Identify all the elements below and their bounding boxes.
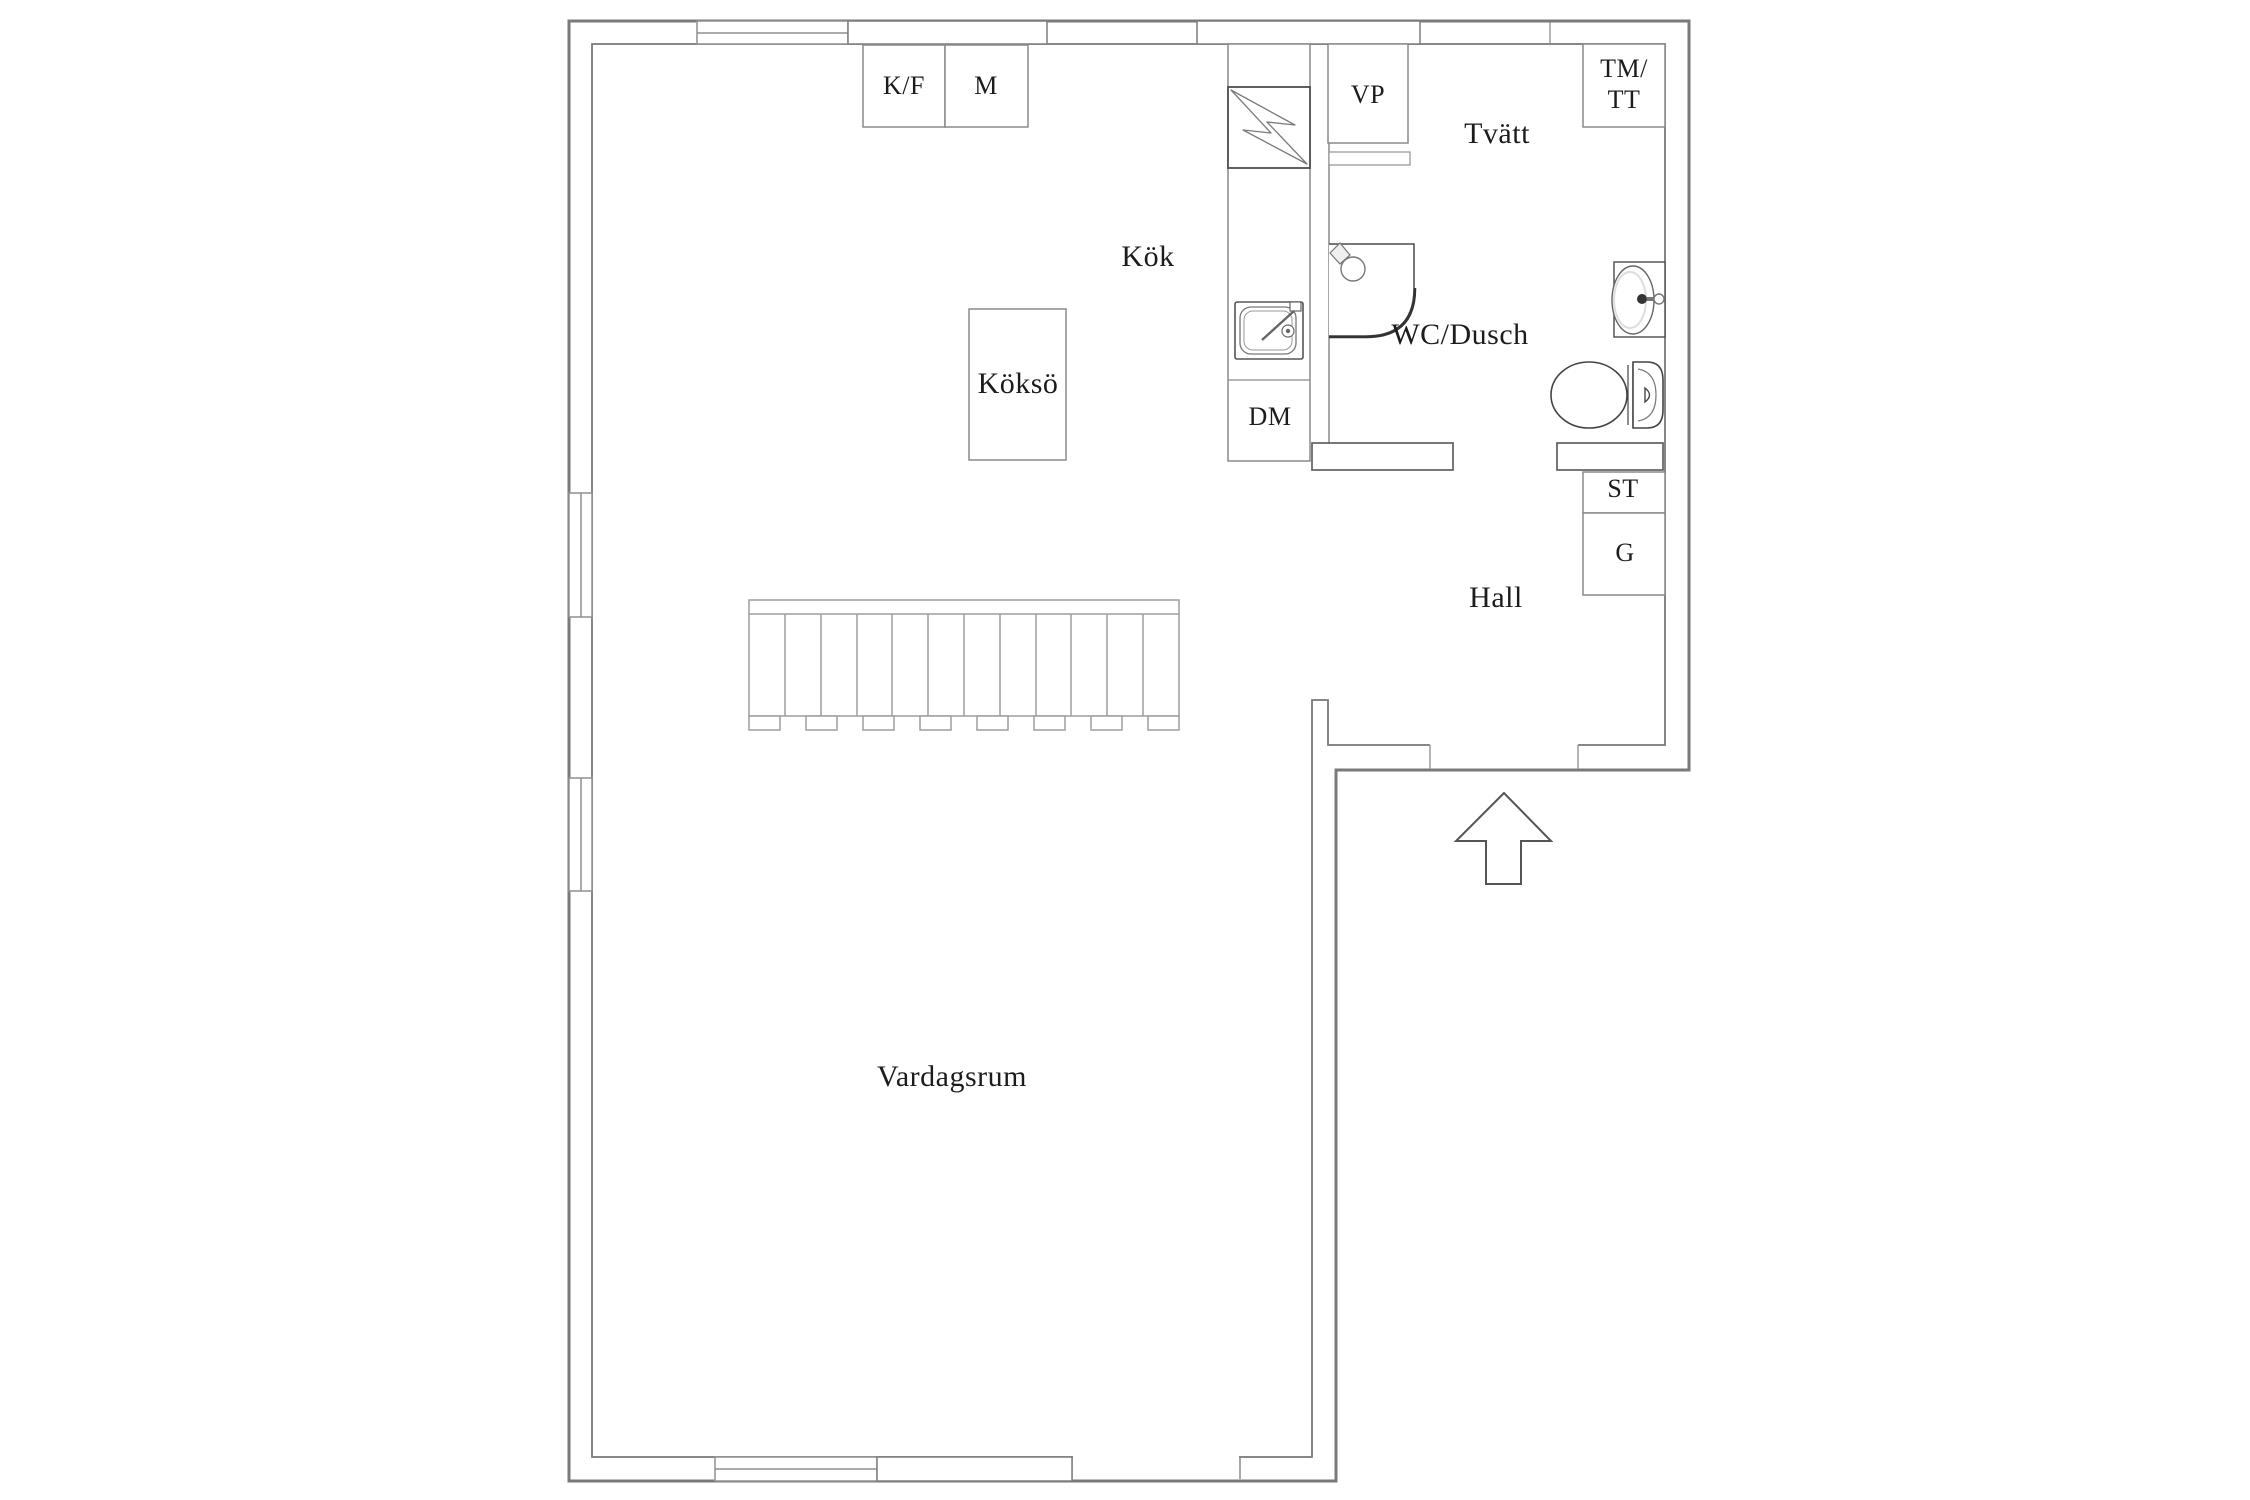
label-laundry-room: Tvätt <box>1464 117 1530 151</box>
entrance-arrow-icon <box>1456 793 1551 884</box>
window-left-lower <box>569 778 592 891</box>
floor-plan-drawing <box>0 0 2250 1500</box>
label-living-room: Vardagsrum <box>877 1060 1027 1094</box>
toilet <box>1551 362 1663 428</box>
window-left-upper <box>569 493 592 617</box>
electric-panel <box>1228 87 1310 168</box>
bottom-wall-opening <box>1072 1451 1240 1479</box>
wall-wc-hall-left <box>1312 443 1453 470</box>
partition-laundry-wc <box>1329 152 1410 165</box>
label-heat-pump: VP <box>1351 80 1385 110</box>
label-washer-line2: TT <box>1600 84 1648 115</box>
label-storage: ST <box>1607 474 1638 504</box>
kitchen-sink <box>1235 302 1303 359</box>
label-washer-dryer: TM/ TT <box>1600 53 1648 115</box>
bottom-wall-band <box>877 1457 1072 1481</box>
kitchen-unit-column <box>1228 44 1310 461</box>
label-fridge-freezer: K/F <box>883 71 925 101</box>
label-bathroom: WC/Dusch <box>1391 318 1528 352</box>
label-hall: Hall <box>1469 581 1523 615</box>
label-kitchen-island: Köksö <box>978 367 1059 401</box>
label-washer-line1: TM/ <box>1600 53 1648 84</box>
bathroom-sink <box>1612 262 1665 337</box>
window-bottom <box>715 1457 877 1481</box>
label-kitchen: Kök <box>1121 240 1174 274</box>
top-wall-band-right <box>1197 21 1420 44</box>
floor-plan: K/F M VP TM/ TT Tvätt Kök Köksö DM WC/Du… <box>0 0 2250 1500</box>
window-top <box>697 21 848 44</box>
label-wardrobe: G <box>1615 538 1634 568</box>
staircase <box>749 600 1179 730</box>
top-wall-band-left <box>848 21 1047 44</box>
label-dishwasher: DM <box>1249 402 1292 432</box>
label-oven: M <box>974 71 998 101</box>
wall-wc-hall-right <box>1557 443 1663 470</box>
